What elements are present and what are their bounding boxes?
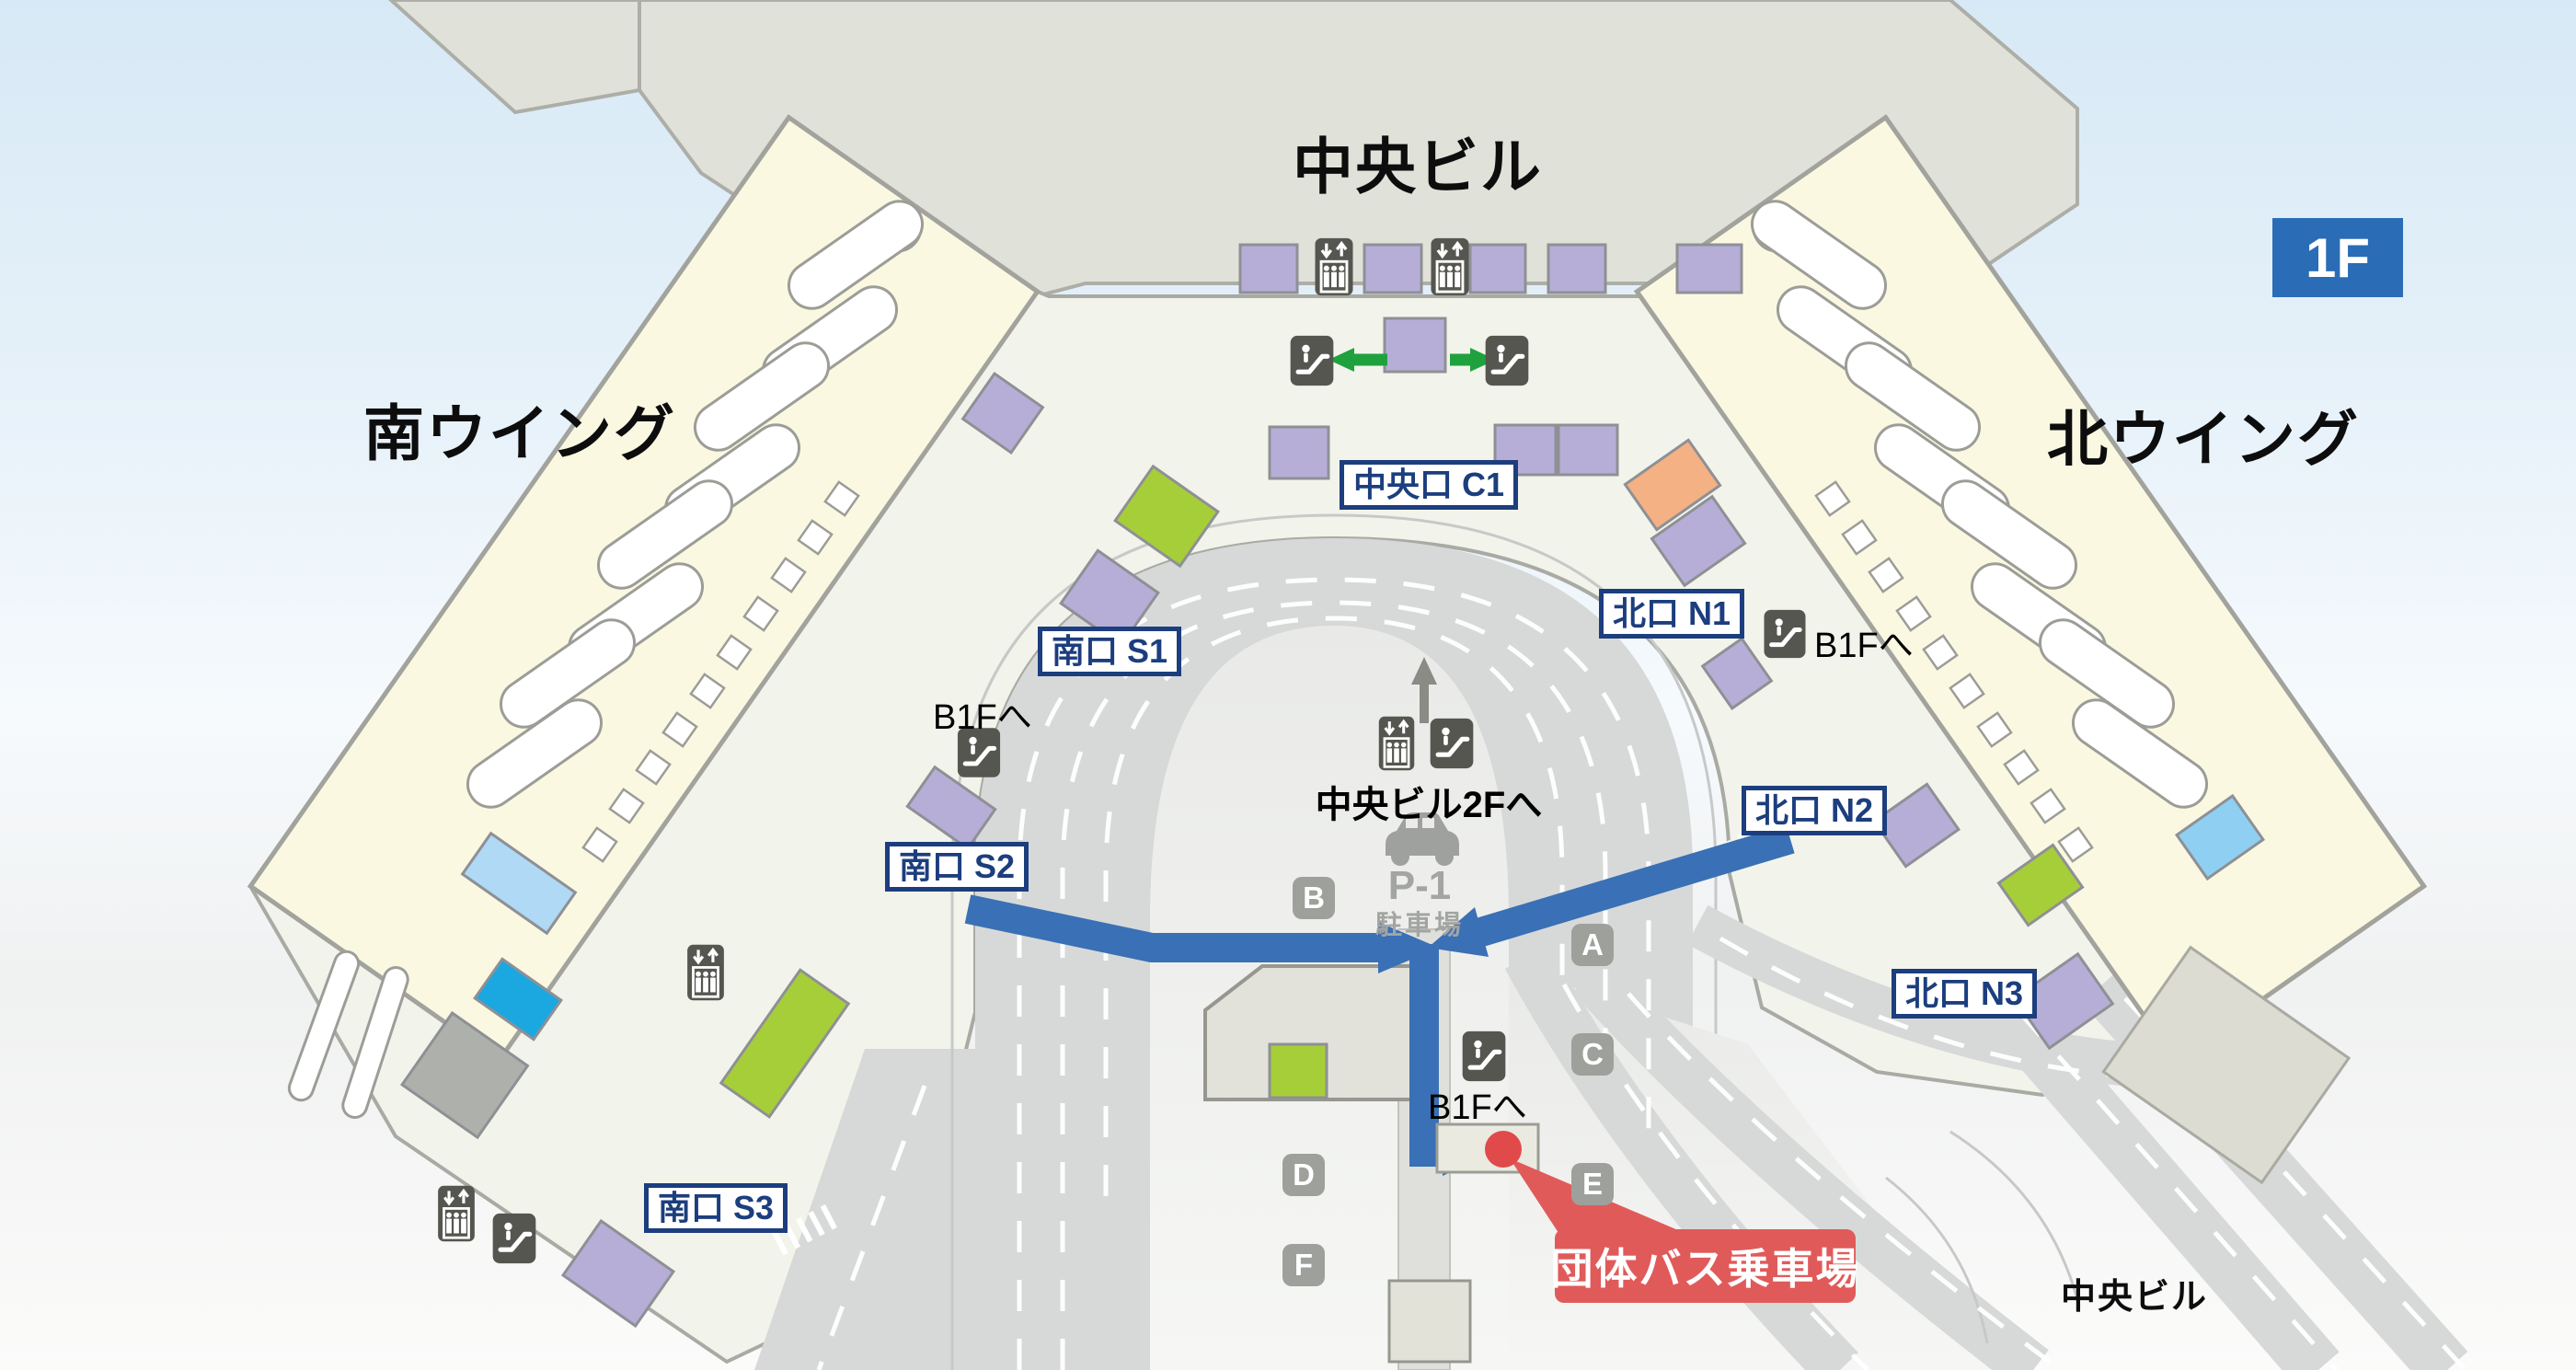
gate-label-s2: 南口 S2 bbox=[885, 842, 1029, 892]
gate-label-c1: 中央口 C1 bbox=[1340, 460, 1518, 510]
escalator-icon bbox=[493, 1214, 536, 1263]
bus-stop-chip-d: D bbox=[1282, 1154, 1325, 1196]
gate-label-n2: 北口 N2 bbox=[1742, 786, 1887, 835]
group-bus-stop-callout: 団体バス乗車場 bbox=[1555, 1229, 1856, 1303]
group-bus-stop-marker bbox=[1485, 1131, 1522, 1168]
bus-shelter bbox=[1389, 1281, 1470, 1362]
escalator-icon bbox=[1486, 336, 1529, 386]
escalator-icon bbox=[1291, 336, 1334, 386]
bus-stop-chip-b: B bbox=[1293, 877, 1335, 919]
gate-label-n3: 北口 N3 bbox=[1892, 969, 2037, 1019]
elevator-icon bbox=[687, 945, 724, 1000]
to-b1f-label-north: B1Fへ bbox=[1814, 616, 1914, 667]
terminal-map: 中央ビル 1F 南ウイング 北ウイング 中央ビル 中央口 C1 北口 N1 南口… bbox=[0, 0, 2576, 1370]
escalator-icon bbox=[1431, 719, 1474, 768]
south-wing-title: 南ウイング bbox=[340, 385, 699, 473]
bus-stop-chip-c: C bbox=[1571, 1033, 1614, 1076]
elevator-icon bbox=[438, 1186, 475, 1241]
escalator-icon bbox=[1463, 1031, 1506, 1081]
elevator-icon bbox=[1379, 717, 1414, 770]
bus-stop-chip-e: E bbox=[1571, 1163, 1614, 1205]
gate-label-s3: 南口 S3 bbox=[644, 1183, 788, 1233]
elevator-icon bbox=[1431, 238, 1468, 295]
bus-stop-chip-f: F bbox=[1282, 1244, 1325, 1286]
central-building-bottom-title: 中央ビル bbox=[2024, 1268, 2245, 1318]
central-building-title: 中央ビル bbox=[1266, 118, 1570, 206]
elevator-icon bbox=[1315, 238, 1352, 295]
gate-label-n1: 北口 N1 bbox=[1599, 589, 1744, 639]
floor-badge: 1F bbox=[2272, 218, 2403, 297]
gate-label-s1: 南口 S1 bbox=[1038, 627, 1181, 676]
north-wing-title: 北ウイング bbox=[1992, 390, 2415, 478]
escalator-icon bbox=[1765, 610, 1806, 658]
to-b1f-label-bus: B1Fへ bbox=[1428, 1078, 1527, 1129]
to-b1f-label-south: B1Fへ bbox=[933, 688, 1032, 739]
parking-caption: 駐車場 bbox=[1369, 904, 1470, 942]
parking-name: P-1 bbox=[1378, 863, 1461, 909]
bus-stop-chip-a: A bbox=[1571, 924, 1614, 966]
to-central-2f-label: 中央ビル2Fへ bbox=[1295, 775, 1562, 828]
